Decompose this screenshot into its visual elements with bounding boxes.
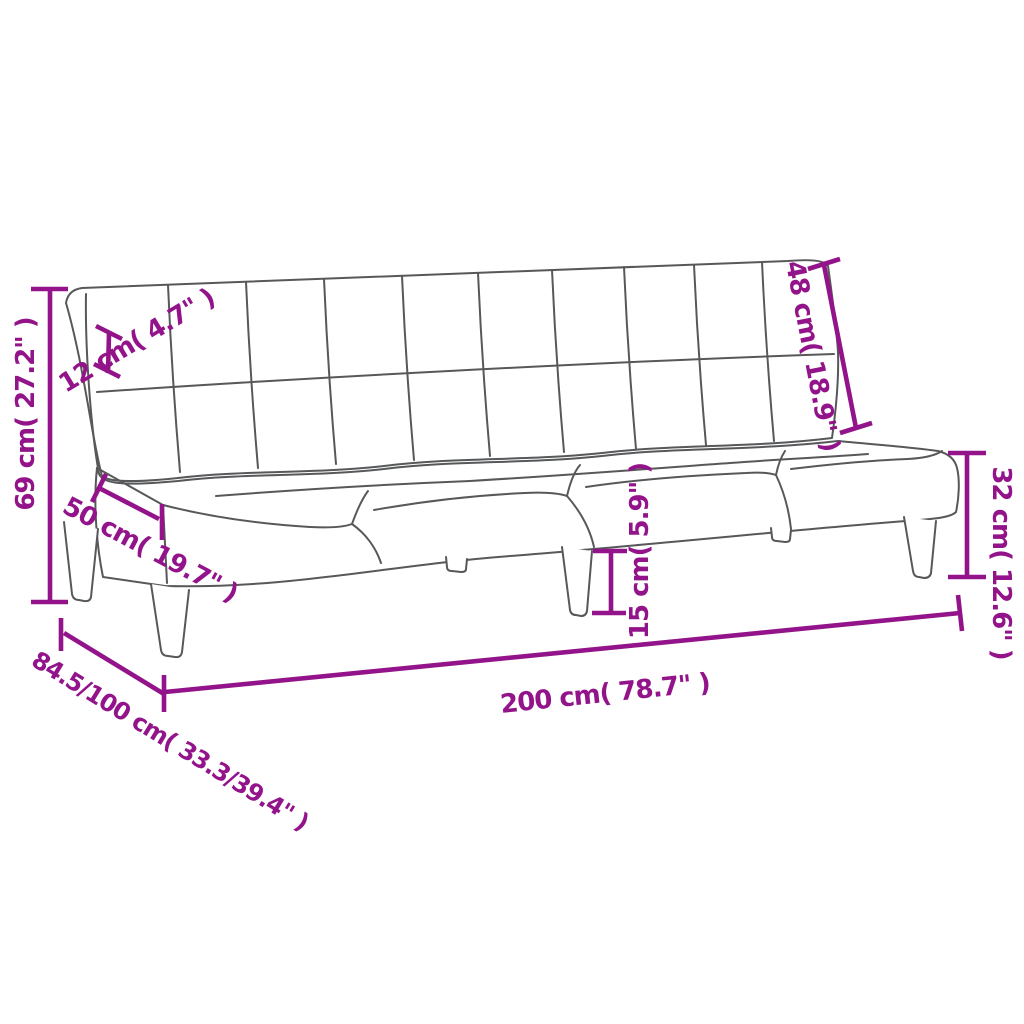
sofa-leg-back-right [771,528,791,542]
sofa-leg-front-right [904,517,936,578]
dimension-total-width: 200 cm( 78.7" ) [165,595,962,720]
sofa-bed-diagram-svg: 69 cm( 27.2" ) 12 cm( 4.7" ) 50 cm( 19.7… [0,0,1024,1024]
dimension-label-total-height: 69 cm( 27.2" ) [11,317,41,510]
sofa-leg-front-left [151,584,189,657]
dimension-diagram: 69 cm( 27.2" ) 12 cm( 4.7" ) 50 cm( 19.7… [0,0,1024,1024]
dimension-label-leg-height: 15 cm( 5.9" ) [625,463,655,639]
dimension-label-seat-height: 32 cm( 12.6" ) [986,466,1016,659]
dimension-label-depth-sofa-bed: 84.5/100 cm( 33.3/39.4" ) [27,646,314,837]
dimension-tick [958,595,962,631]
sofa-leg-front-middle [562,547,592,616]
dimension-line [165,613,960,692]
dimension-label-total-width: 200 cm( 78.7" ) [499,668,711,720]
sofa-leg-back-middle [446,557,467,572]
dimension-total-height: 69 cm( 27.2" ) [11,289,68,602]
